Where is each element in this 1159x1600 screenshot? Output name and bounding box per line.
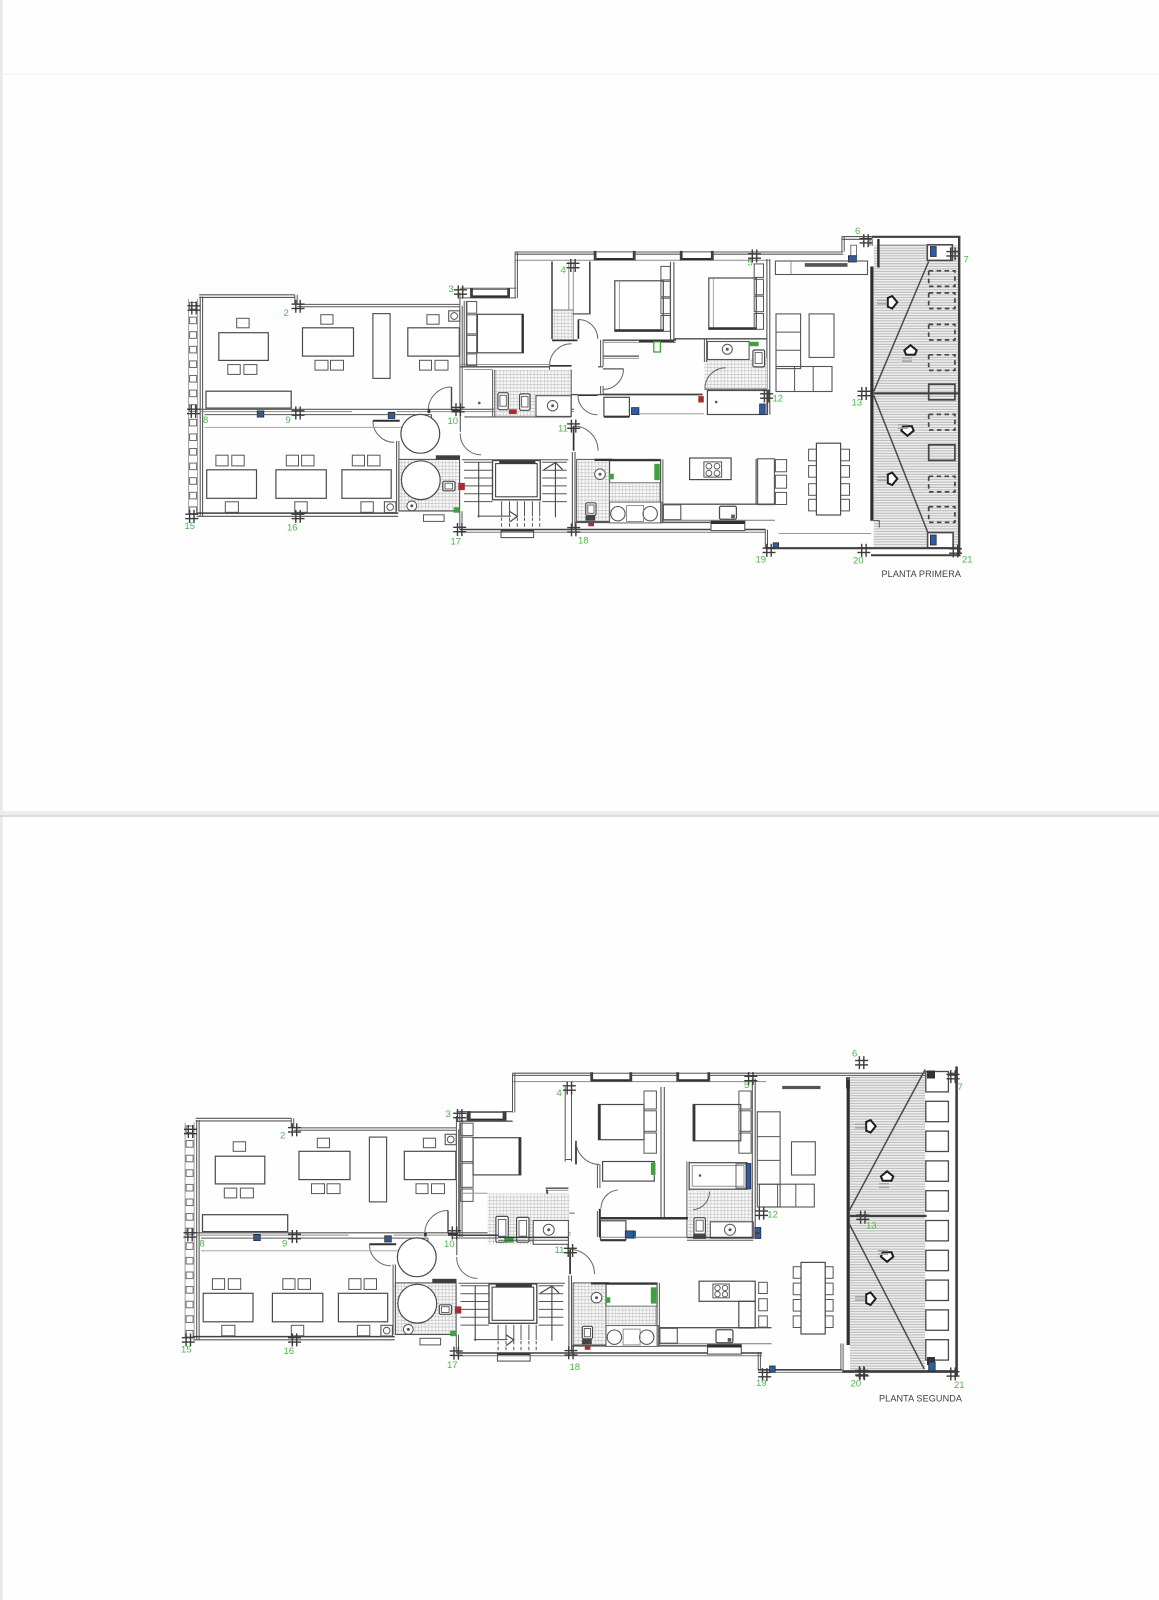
- svg-text:5: 5: [748, 258, 753, 269]
- svg-text:16: 16: [287, 522, 298, 533]
- svg-text:PLANTA SEGUNDA: PLANTA SEGUNDA: [879, 1394, 963, 1404]
- svg-text:12: 12: [767, 1210, 778, 1221]
- svg-text:13: 13: [852, 397, 863, 408]
- svg-text:3: 3: [449, 284, 454, 295]
- svg-text:10: 10: [444, 1239, 455, 1250]
- svg-text:4: 4: [561, 265, 566, 276]
- svg-text:19: 19: [756, 554, 767, 565]
- svg-text:12: 12: [773, 393, 784, 404]
- svg-text:18: 18: [578, 536, 589, 547]
- svg-text:21: 21: [962, 554, 973, 565]
- svg-text:17: 17: [451, 536, 462, 547]
- svg-text:20: 20: [851, 1378, 862, 1389]
- svg-text:11: 11: [555, 1245, 565, 1256]
- svg-text:19: 19: [756, 1378, 767, 1389]
- svg-text:4: 4: [557, 1088, 562, 1099]
- svg-text:6: 6: [852, 1048, 857, 1059]
- svg-text:21: 21: [954, 1380, 965, 1391]
- svg-text:15: 15: [185, 521, 196, 532]
- svg-text:5: 5: [744, 1080, 749, 1091]
- svg-text:7: 7: [958, 1082, 963, 1093]
- svg-text:6: 6: [855, 226, 860, 237]
- svg-text:9: 9: [286, 415, 291, 426]
- svg-text:8: 8: [200, 1238, 205, 1249]
- svg-text:8: 8: [203, 415, 208, 426]
- svg-text:2: 2: [284, 308, 289, 319]
- svg-text:11: 11: [558, 423, 568, 434]
- svg-text:20: 20: [853, 555, 864, 566]
- svg-text:13: 13: [866, 1221, 877, 1232]
- svg-text:16: 16: [284, 1346, 295, 1357]
- svg-text:2: 2: [280, 1131, 285, 1142]
- svg-text:18: 18: [570, 1362, 581, 1373]
- svg-text:7: 7: [964, 255, 969, 266]
- svg-text:15: 15: [181, 1344, 192, 1355]
- svg-text:10: 10: [448, 416, 459, 427]
- svg-text:PLANTA PRIMERA: PLANTA PRIMERA: [882, 569, 962, 579]
- svg-text:9: 9: [282, 1238, 287, 1249]
- svg-text:3: 3: [446, 1109, 451, 1120]
- svg-text:17: 17: [447, 1360, 458, 1371]
